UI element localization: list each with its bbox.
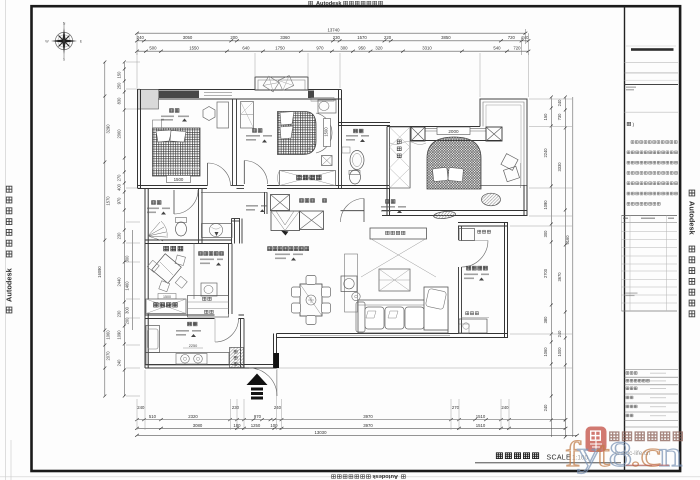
svg-text:3670: 3670 [557,272,562,282]
svg-text:3970: 3970 [363,423,373,428]
svg-text:970: 970 [316,46,324,51]
svg-text:510: 510 [149,414,157,419]
svg-text:1550: 1550 [189,46,199,51]
svg-text:3360: 3360 [280,35,290,40]
svg-text:240: 240 [557,99,562,107]
svg-text:270: 270 [117,174,122,182]
svg-text:n: n [659,434,683,474]
svg-text:150: 150 [543,113,548,121]
svg-text:240: 240 [557,330,562,338]
svg-text:540: 540 [493,46,501,51]
svg-text:180: 180 [233,423,241,428]
svg-text:230: 230 [333,35,341,40]
svg-text:720: 720 [513,46,521,51]
svg-text:3080: 3080 [193,423,203,428]
svg-text:1570: 1570 [106,196,111,206]
svg-text:3310: 3310 [422,46,432,51]
svg-text:200: 200 [230,35,238,40]
svg-text:16090: 16090 [97,266,102,278]
svg-text:240: 240 [137,35,145,40]
svg-text:150: 150 [117,71,122,79]
svg-text:Autodesk: Autodesk [372,473,398,479]
svg-text:1250: 1250 [251,423,261,428]
svg-text:100: 100 [270,423,278,428]
svg-text:640: 640 [242,46,250,51]
svg-text:240: 240 [137,405,145,410]
svg-text:720: 720 [508,35,516,40]
svg-text:270: 270 [452,405,460,410]
svg-text:300: 300 [340,46,348,51]
svg-text:2700: 2700 [543,268,548,278]
svg-text:N: N [63,22,66,26]
svg-text:230: 230 [117,232,122,240]
svg-text:1460: 1460 [125,281,130,291]
svg-text:13030: 13030 [315,430,328,435]
svg-text:9160: 9160 [565,235,570,245]
svg-text:240: 240 [117,359,122,367]
svg-text:1090: 1090 [117,330,122,340]
svg-text:2240: 2240 [543,148,548,158]
svg-text:230: 230 [117,310,122,318]
svg-text:1750: 1750 [275,46,285,51]
svg-text:W: W [45,40,49,44]
svg-text:Autodesk: Autodesk [316,1,342,7]
svg-text:2440: 2440 [117,277,122,287]
svg-text:300: 300 [125,306,130,314]
svg-text:3290: 3290 [106,124,111,134]
svg-text:13740: 13740 [328,28,341,33]
svg-text:1570: 1570 [357,35,367,40]
svg-text:2000: 2000 [448,129,459,134]
svg-text:300: 300 [543,230,548,238]
svg-text:830: 830 [117,97,122,105]
svg-text:950: 950 [358,46,366,51]
svg-text:1510: 1510 [476,414,486,419]
svg-text:2320: 2320 [188,414,198,419]
svg-text:240: 240 [501,405,509,410]
svg-text:500: 500 [149,46,157,51]
svg-text:3850: 3850 [441,35,451,40]
svg-text:1500: 1500 [323,127,328,137]
svg-text:1060: 1060 [106,330,111,340]
svg-text:1510: 1510 [476,423,486,428]
svg-text:3050: 3050 [183,35,193,40]
svg-text:220: 220 [384,35,392,40]
svg-text:1000: 1000 [557,347,562,357]
svg-text:3970: 3970 [363,414,373,419]
svg-text:400: 400 [117,183,122,191]
svg-text:2060: 2060 [117,129,122,139]
svg-text:730: 730 [557,113,562,121]
svg-text:1090: 1090 [543,200,548,210]
svg-text:Autodesk: Autodesk [5,267,14,302]
svg-text:240: 240 [543,404,548,412]
svg-text:380: 380 [543,316,548,324]
svg-text:1060: 1060 [543,347,548,357]
svg-text:1500: 1500 [174,177,184,182]
svg-text:230: 230 [232,405,240,410]
svg-text:1500: 1500 [163,295,171,299]
svg-text:2250: 2250 [189,344,197,348]
svg-text:3330: 3330 [557,162,562,172]
svg-text:320: 320 [375,46,383,51]
svg-text:970: 970 [117,197,122,205]
svg-text:2070: 2070 [106,351,111,361]
svg-text:250: 250 [117,82,122,90]
svg-text:Autodesk: Autodesk [687,201,696,236]
svg-text:240: 240 [274,405,282,410]
